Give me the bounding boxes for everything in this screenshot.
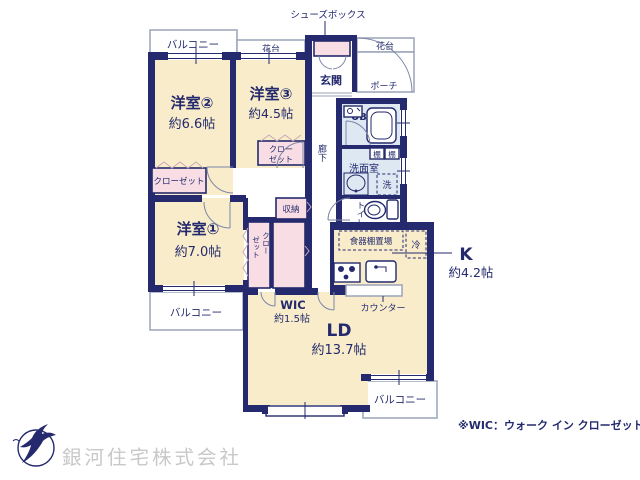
balcony-left: バルコニー <box>150 292 243 330</box>
storage-shuunou: 収納 <box>276 198 311 219</box>
yoshitsu1-size: 約7.0帖 <box>175 245 222 260</box>
yoshitsu3-size: 約4.5帖 <box>249 106 294 121</box>
balcony-bottom: バルコニー <box>363 381 437 418</box>
counter-label: カウンター <box>360 303 405 314</box>
ld-name: LD <box>327 321 352 341</box>
wic-note: ※WIC：ウォーク イン クローゼット <box>458 418 640 432</box>
balcony-top-left-label: バルコニー <box>167 39 219 51</box>
closet-yoshitsu2-label: クローゼット <box>153 176 204 187</box>
balcony-bottom-label: バルコニー <box>374 394 426 406</box>
shoes-box <box>314 41 350 56</box>
yoshitsu3-name: 洋室③ <box>250 85 293 103</box>
toilet-label: トイレ <box>355 201 365 227</box>
closet-yoshitsu1: クロー ゼット <box>243 222 271 288</box>
floor-plan: バルコニー 花台 花台 ポーチ バルコニー バルコニー <box>0 0 640 480</box>
laundry-label: 洗 <box>382 179 391 191</box>
floor-plan-page: バルコニー 花台 花台 ポーチ バルコニー バルコニー <box>0 0 640 480</box>
rouka-label: 廊下 <box>316 143 327 163</box>
shuunou-label: 収納 <box>282 204 299 215</box>
yoshitsu2-name: 洋室② <box>171 94 214 112</box>
shelf-2-label: 棚 <box>388 149 396 159</box>
yoshitsu1-name: 洋室① <box>177 220 220 238</box>
porch-label: ポーチ <box>370 81 397 92</box>
porch: ポーチ <box>357 52 414 92</box>
genkan-label: 玄関 <box>320 73 342 87</box>
bathtub-icon <box>367 108 396 143</box>
fridge-label: 冷 <box>411 239 420 251</box>
company-name: 銀河住宅株式会社 <box>62 446 242 469</box>
wic-size: 約1.5帖 <box>274 312 310 325</box>
kitchen-name: K <box>459 245 473 265</box>
shelf-1-label: 棚 <box>373 149 381 159</box>
wic-name: WIC <box>280 298 305 312</box>
bird-icon <box>20 424 56 463</box>
closet-yoshitsu1-line1: クロー <box>262 232 271 255</box>
kitchen-size: 約4.2帖 <box>449 265 494 280</box>
ld-size: 約13.7帖 <box>312 343 367 358</box>
stove-icon <box>334 263 360 282</box>
closet-yoshitsu1-line2: ゼット <box>251 236 260 259</box>
company-logo <box>13 424 56 466</box>
closet-yoshitsu3-line2: ゼット <box>269 154 293 164</box>
shoes-box-label: シューズボックス <box>290 9 365 21</box>
dish-shelf-label: 食器棚置場 <box>350 236 393 247</box>
kitchen-sink-icon <box>366 261 396 282</box>
ub-sink-icon <box>344 106 362 117</box>
balcony-left-label: バルコニー <box>170 307 222 319</box>
yoshitsu2-size: 約6.6帖 <box>169 117 216 132</box>
toilet-icon <box>365 200 399 219</box>
